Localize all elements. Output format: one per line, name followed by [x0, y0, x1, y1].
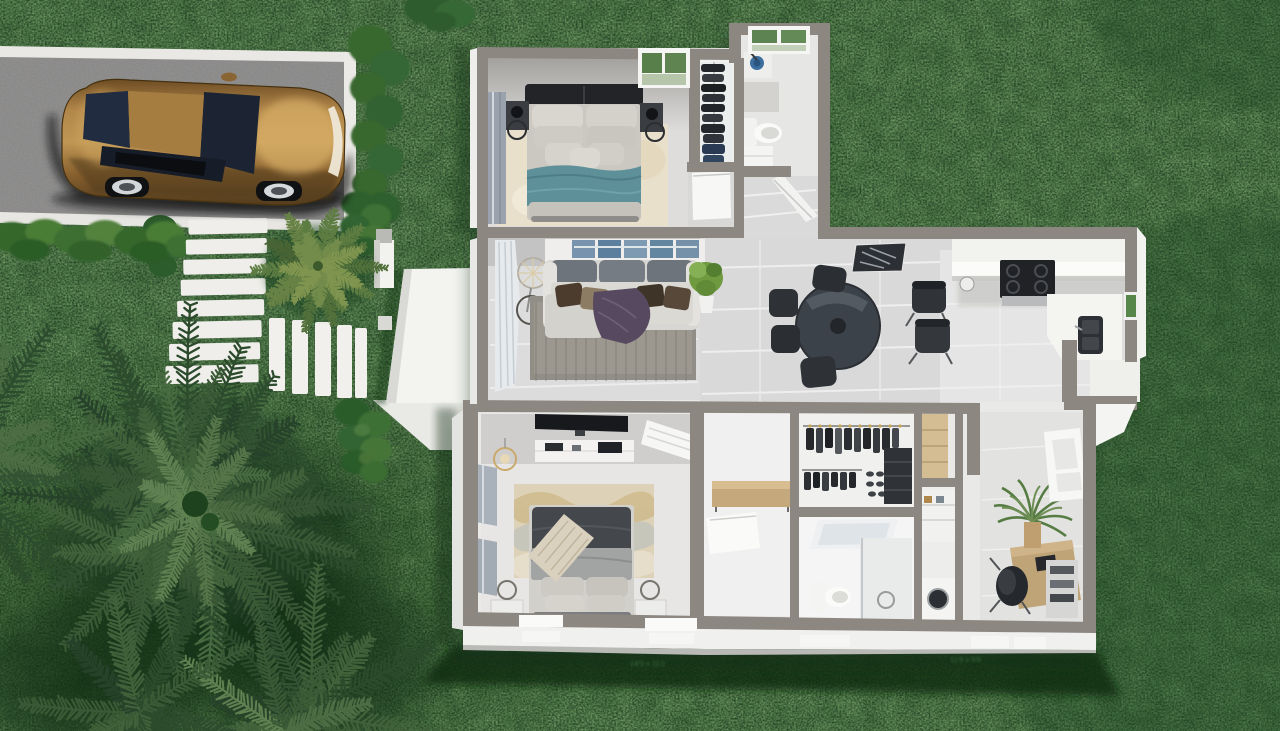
- svg-text:14'0 x 11'2: 14'0 x 11'2: [630, 659, 665, 668]
- svg-text:11'6 x 9'8: 11'6 x 9'8: [950, 655, 981, 664]
